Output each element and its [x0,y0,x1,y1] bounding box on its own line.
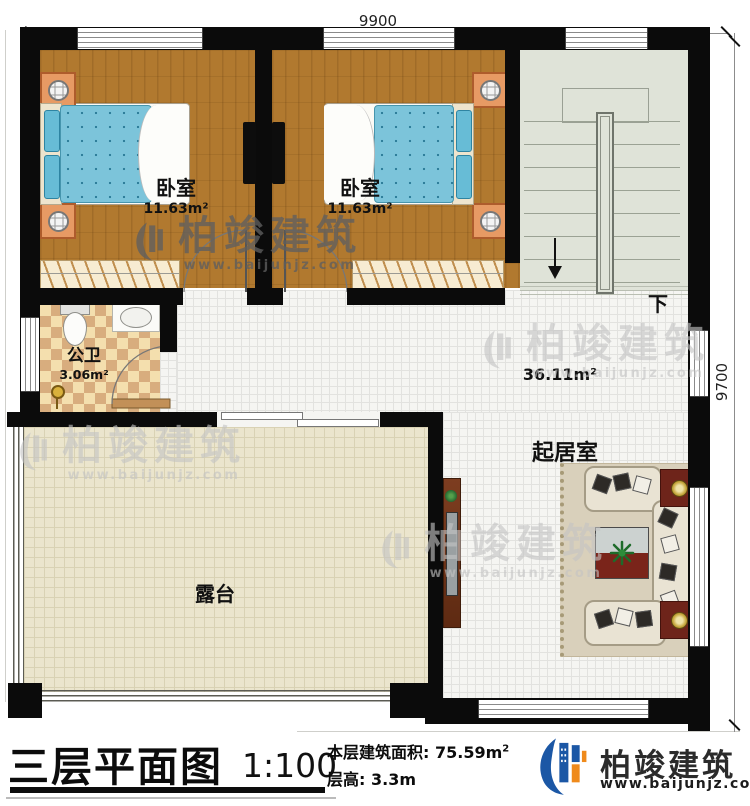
room-name: 露台 [165,582,265,607]
pillar-bottom-mid [390,683,428,718]
sliding-door-panel [221,412,303,420]
window-bathroom [21,317,39,392]
pillar-bottom-left [8,683,42,718]
drawing-title: 三层平面图 [8,733,223,793]
door-arc [285,230,347,292]
door-swing-overlay [0,0,750,806]
living-name-label: 起居室 [505,440,625,468]
wall-bathroom-bottom [7,412,217,427]
wall-corridor-a [20,288,183,305]
wall-terrace-living [428,412,443,702]
floor-height-label: 层高: [327,770,365,789]
terrace-label: 露台 [165,582,265,607]
floor-height-text: 层高: 3.3m [327,766,416,790]
room-name: 公卫 [44,346,124,367]
sliding-door [217,412,380,427]
floor-area-text: 本层建筑面积: 75.59m2 [327,739,509,763]
living-area-label: 36.11m² [505,365,615,385]
title-underline-thin [6,797,336,799]
window-stairs [565,28,648,49]
wall-bathroom-right [160,305,177,352]
floor-area-value: 75.59m [435,743,502,762]
dimension-top-value: 9900 [340,12,416,30]
room-name: 卧室 [300,176,420,201]
floor-area-sup: 2 [502,744,509,755]
wall-bedroom2-stairs [505,50,520,263]
window-bedroom1 [77,28,203,49]
tv-icon [272,122,285,184]
brand-url: www.baijunjz.com [600,776,750,792]
door-leaf [112,399,170,408]
drawing-scale: 1:100 [242,746,337,785]
stair-down-label: 下 [648,288,668,317]
title-underline [10,787,325,793]
window-living-bottom [478,700,649,718]
window-living-right-lower [690,487,708,647]
sliding-door-panel [297,419,379,427]
dimension-right-value: 9700 [692,352,750,412]
room-area: 11.63m² [116,201,236,219]
room-area: 3.06m² [44,367,124,383]
bathroom-label: 公卫 3.06m² [44,346,124,383]
tv-icon [243,122,256,184]
brand-logo-icon [536,735,594,797]
wall-corridor-c [347,288,505,305]
floor-plan-canvas: 下 [0,0,750,806]
bedroom1-label: 卧室 11.63m² [116,176,236,219]
room-area: 11.63m² [300,201,420,219]
room-area: 36.11m² [505,365,615,385]
wall-corridor-b [247,288,283,305]
wall-bedroom-divider [255,50,272,290]
door-arc [184,230,246,292]
window-bedroom2 [323,28,455,49]
room-name: 起居室 [505,440,625,468]
room-name: 卧室 [116,176,236,201]
floor-area-label: 本层建筑面积: [327,743,429,762]
floor-height-value: 3.3m [371,770,416,789]
bedroom2-label: 卧室 11.63m² [300,176,420,219]
